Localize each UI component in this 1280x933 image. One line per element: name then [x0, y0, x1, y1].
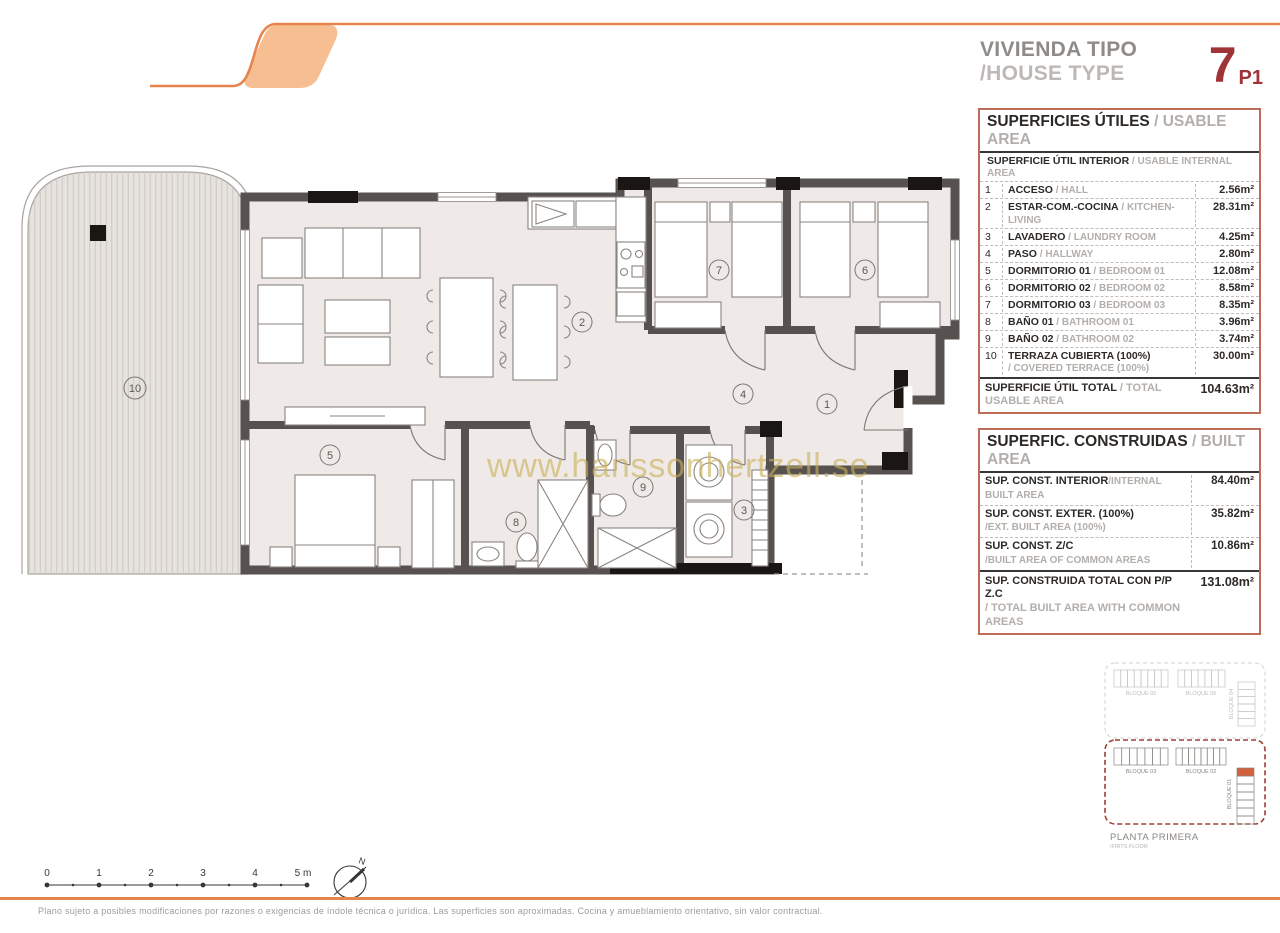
usable-title-es: SUPERFICIES ÚTILES: [987, 113, 1150, 130]
room-label-6: 6: [862, 265, 868, 277]
usable-row-5: 5DORMITORIO 01 / BEDROOM 0112.08m²: [980, 262, 1259, 279]
room-label-4: 4: [740, 389, 746, 401]
room-label-3: 3: [741, 505, 747, 517]
built-title-es: SUPERFIC. CONSTRUIDAS: [987, 433, 1188, 450]
usable-row-8: 8BAÑO 01 / BATHROOM 013.96m²: [980, 313, 1259, 330]
site-unit-cell: [1129, 748, 1137, 765]
site-unit-cell: [1178, 670, 1185, 687]
built-total-en: / TOTAL BUILT AREA WITH COMMON AREAS: [985, 602, 1180, 628]
built-row: SUP. CONST. INTERIOR/INTERNAL BUILT AREA…: [980, 473, 1259, 505]
scale-tick: [124, 884, 127, 887]
room-label-5: 5: [327, 450, 333, 462]
floorplan-page: { "header": { "title_es": "VIVIENDA TIPO…: [0, 0, 1280, 933]
site-unit-cell: [1191, 670, 1198, 687]
scale-tick: [97, 883, 102, 888]
site-unit-cell: [1238, 711, 1255, 718]
site-unit-cell: [1114, 670, 1121, 687]
scale-tick: [149, 883, 154, 888]
built-area-table: SUPERFIC. CONSTRUIDAS / BUILT AREA SUP. …: [978, 428, 1261, 635]
scale-tick: [176, 884, 179, 887]
scale-tick: [253, 883, 258, 888]
site-unit-cell: [1220, 748, 1226, 765]
site-unit-cell: [1238, 689, 1255, 696]
site-unit-cell: [1148, 670, 1155, 687]
scale-tick: [305, 883, 310, 888]
usable-row-2: 2ESTAR-COM.-COCINA / KITCHEN-LIVING28.31…: [980, 198, 1259, 228]
site-unit-cell: [1237, 776, 1254, 784]
floor-label-es: PLANTA PRIMERA: [1110, 832, 1199, 843]
site-unit-cell: [1212, 670, 1219, 687]
usable-row-7: 7DORMITORIO 03 / BEDROOM 038.35m²: [980, 296, 1259, 313]
site-unit-cell: [1238, 719, 1255, 726]
built-table-title: SUPERFIC. CONSTRUIDAS / BUILT AREA: [980, 430, 1259, 473]
site-unit-cell: [1185, 670, 1192, 687]
usable-row-1: 1ACCESO / HALL2.56m²: [980, 181, 1259, 198]
site-unit-cell: [1182, 748, 1188, 765]
logo-shape: [245, 25, 338, 88]
block01-label: BLOQUE 01: [1227, 779, 1233, 810]
room-label-1: 1: [824, 399, 830, 411]
site-unit-cell: [1195, 748, 1201, 765]
site-unit-cell: [1214, 748, 1220, 765]
north-label: N: [357, 855, 366, 867]
scale-tick: [72, 884, 75, 887]
usable-total-row: SUPERFICIE ÚTIL TOTAL / TOTAL USABLE ARE…: [980, 377, 1259, 413]
title-block: VIVIENDA TIPO /HOUSE TYPE 7 P1: [980, 38, 1263, 90]
site-unit-cell: [1237, 816, 1254, 824]
scale-4: 4: [252, 868, 258, 879]
scale-5m: 5 m: [295, 868, 312, 879]
site-unit-cell: [1237, 800, 1254, 808]
site-unit-cell: [1176, 748, 1182, 765]
room-label-10: 10: [129, 383, 141, 395]
north-arrow: N: [334, 855, 367, 898]
usable-row-4: 4PASO / HALLWAY2.80m²: [980, 245, 1259, 262]
usable-total-es: SUPERFICIE ÚTIL TOTAL: [985, 382, 1117, 394]
site-unit-cell: [1122, 748, 1130, 765]
site-unit-cell: [1201, 748, 1207, 765]
usable-row-10: 10TERRAZA CUBIERTA (100%)/ COVERED TERRA…: [980, 347, 1259, 377]
disclaimer-text: Plano sujeto a posibles modificaciones p…: [38, 906, 823, 916]
site-unit-cell: [1155, 670, 1162, 687]
footer-accent-line: [0, 897, 1280, 900]
site-unit-cell: [1161, 670, 1168, 687]
terrace: [22, 166, 254, 574]
usable-row-9: 9BAÑO 02 / BATHROOM 023.74m²: [980, 330, 1259, 347]
property-line: [774, 480, 868, 574]
usable-area-table: SUPERFICIES ÚTILES / USABLE AREA SUPERFI…: [978, 108, 1261, 414]
house-type-title-en: /HOUSE TYPE: [980, 62, 1137, 86]
scale-2: 2: [148, 868, 154, 879]
built-total-es: SUP. CONSTRUIDA TOTAL CON P/P Z.C: [985, 575, 1172, 601]
bedroom5-furniture: [270, 475, 454, 568]
site-unit-cell: [1205, 670, 1212, 687]
site-unit-cell: [1238, 682, 1255, 689]
scale-3: 3: [200, 868, 206, 879]
site-unit-cell: [1218, 670, 1225, 687]
room-label-8: 8: [513, 517, 519, 529]
block06-label: BLOQUE 06: [1186, 691, 1217, 697]
site-unit-cell: [1198, 670, 1205, 687]
usable-row-3: 3LAVADERO / LAUNDRY ROOM4.25m²: [980, 228, 1259, 245]
built-rows: SUP. CONST. INTERIOR/INTERNAL BUILT AREA…: [980, 473, 1259, 570]
site-unit-cell: [1134, 670, 1141, 687]
house-type-floor: P1: [1239, 67, 1263, 90]
block05-label: BLOQUE 05: [1126, 691, 1157, 697]
block04-label: BLOQUE 04: [1229, 689, 1235, 720]
usable-rows: 1ACCESO / HALL2.56m²2ESTAR-COM.-COCINA /…: [980, 181, 1259, 377]
site-unit-cell: [1121, 670, 1128, 687]
site-unit-cell: [1207, 748, 1213, 765]
site-unit-cell: [1238, 697, 1255, 704]
house-type-title-es: VIVIENDA TIPO: [980, 38, 1137, 62]
site-unit-cell: [1114, 748, 1122, 765]
usable-table-subtitle: SUPERFICIE ÚTIL INTERIOR / USABLE INTERN…: [980, 153, 1259, 181]
site-unit-cell: [1237, 784, 1254, 792]
scale-tick: [228, 884, 231, 887]
site-unit-cell: [1189, 748, 1195, 765]
site-unit-cell: [1128, 670, 1135, 687]
site-unit-cell: [1137, 748, 1145, 765]
site-unit-cell: [1145, 748, 1153, 765]
scale-tick: [201, 883, 206, 888]
built-row: SUP. CONST. EXTER. (100%)/EXT. BUILT ARE…: [980, 505, 1259, 538]
site-unit-cell: [1153, 748, 1161, 765]
site-unit-cell: [1141, 670, 1148, 687]
terrace-column: [90, 225, 106, 241]
scale-tick: [45, 883, 50, 888]
room-label-7: 7: [716, 265, 722, 277]
built-row: SUP. CONST. Z/C/BUILT AREA OF COMMON ARE…: [980, 537, 1259, 570]
floor-plan: 1 2 3 4 5 6 7 8 9 10: [10, 130, 975, 610]
site-unit-cell: [1237, 792, 1254, 800]
usable-subtitle-es: SUPERFICIE ÚTIL INTERIOR: [987, 155, 1129, 167]
site-unit-cell: [1237, 808, 1254, 816]
built-total-area: 131.08m²: [1188, 575, 1254, 630]
scale-tick: [280, 884, 283, 887]
site-unit-cell: [1238, 704, 1255, 711]
scale-bar: 0 1 2 3 4 5 m N: [20, 852, 390, 912]
usable-table-title: SUPERFICIES ÚTILES / USABLE AREA: [980, 110, 1259, 153]
site-key-plan: BLOQUE 05 BLOQUE 06 BLOQUE 04 BLOQUE 03 …: [1100, 660, 1272, 860]
usable-total-area: 104.63m²: [1188, 382, 1254, 410]
scale-1: 1: [96, 868, 102, 879]
block03-label: BLOQUE 03: [1126, 769, 1157, 775]
scale-0: 0: [44, 868, 50, 879]
built-total-row: SUP. CONSTRUIDA TOTAL CON P/P Z.C / TOTA…: [980, 570, 1259, 633]
site-unit-cell: [1237, 768, 1254, 776]
watermark: www.hanssonhertzell.se: [487, 447, 869, 486]
floor-label-en: /FIRTS FLOOR: [1110, 844, 1148, 850]
block02-label: BLOQUE 02: [1186, 769, 1217, 775]
room-label-2: 2: [579, 317, 585, 329]
usable-row-6: 6DORMITORIO 02 / BEDROOM 028.58m²: [980, 279, 1259, 296]
house-type-number: 7: [1209, 40, 1237, 90]
site-unit-cell: [1160, 748, 1168, 765]
